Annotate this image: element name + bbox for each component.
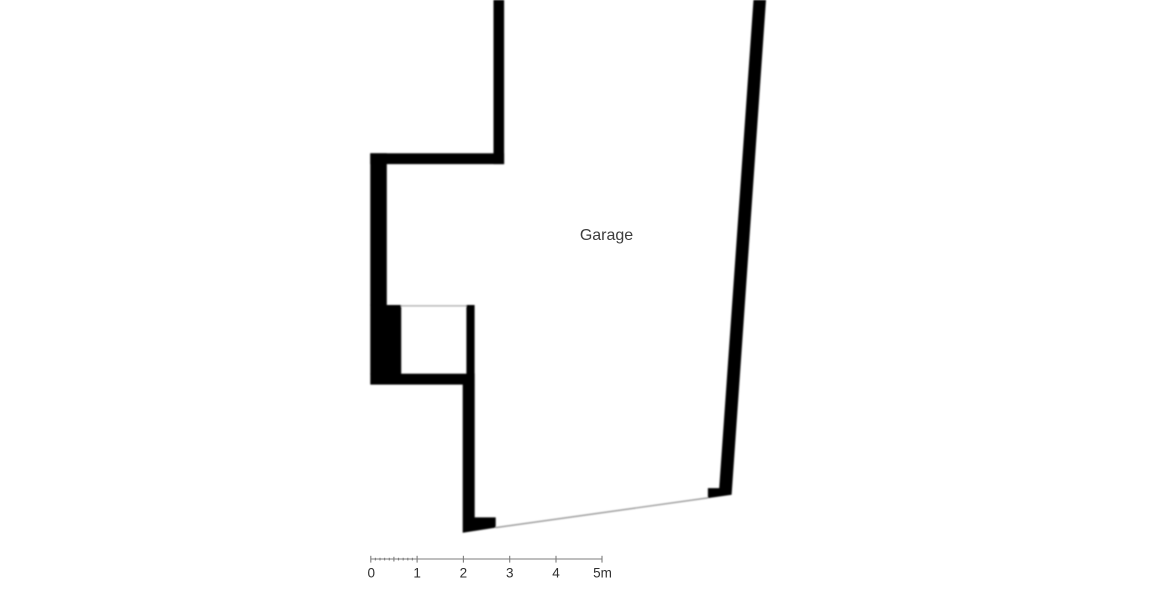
svg-text:Garage: Garage <box>580 227 633 244</box>
svg-text:5m: 5m <box>593 566 612 581</box>
svg-text:4: 4 <box>552 566 560 581</box>
svg-text:2: 2 <box>460 566 468 581</box>
svg-text:0: 0 <box>368 566 376 581</box>
svg-text:1: 1 <box>413 566 421 581</box>
svg-text:3: 3 <box>506 566 514 581</box>
